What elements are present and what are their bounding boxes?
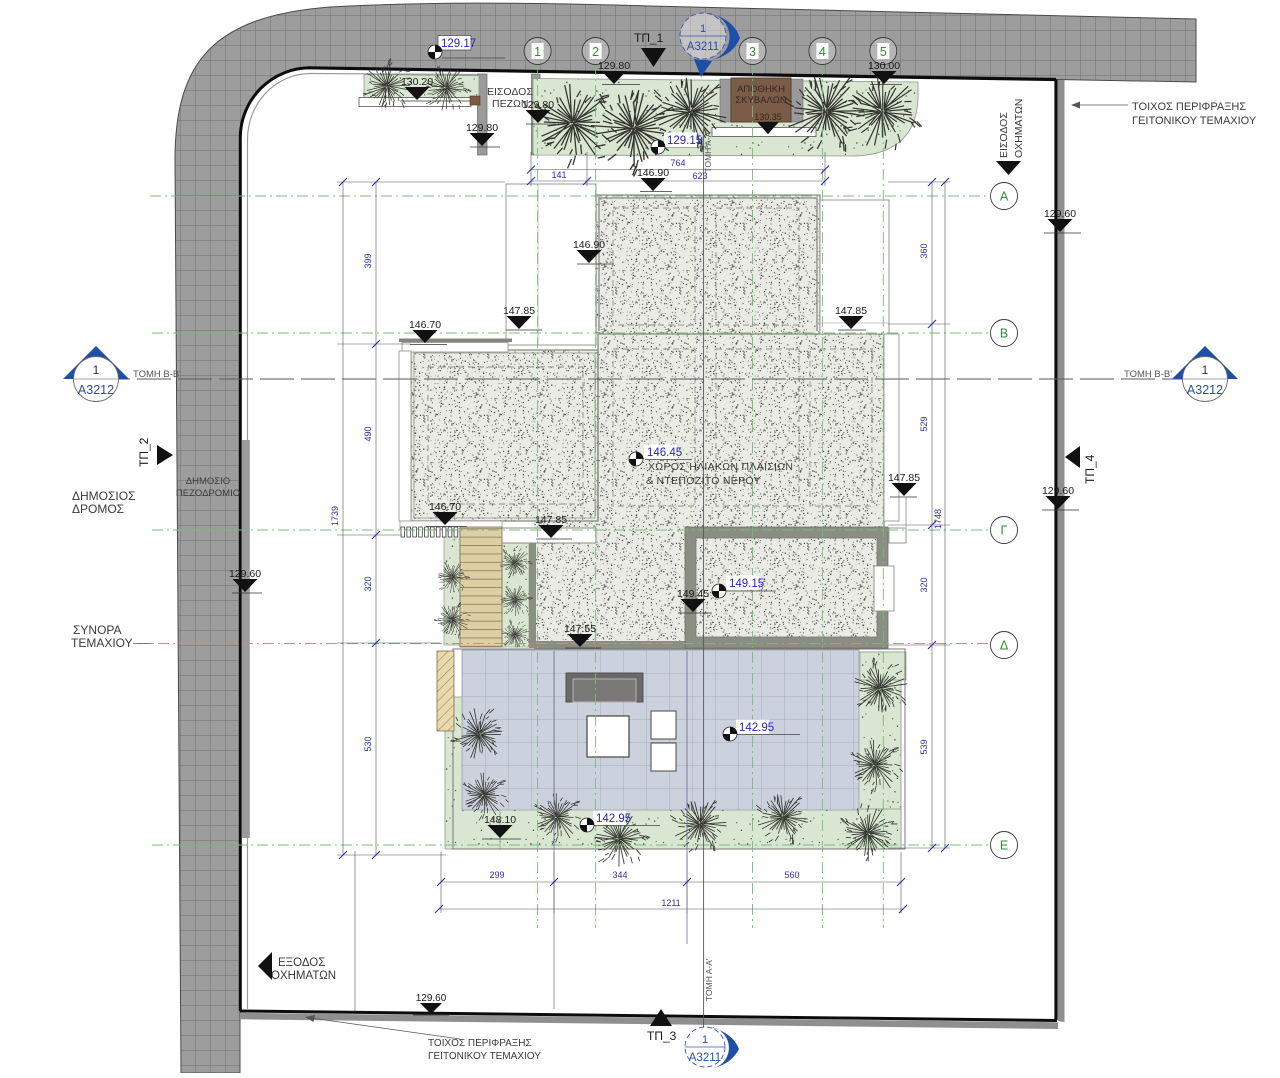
svg-text:ΔΡΟΜΟΣ: ΔΡΟΜΟΣ: [72, 502, 124, 516]
svg-text:146.70: 146.70: [429, 501, 461, 513]
svg-text:147.85: 147.85: [888, 472, 920, 484]
svg-text:ΓΕΙΤΟΝΙΚΟΥ ΤΕΜΑΧΙΟΥ: ΓΕΙΤΟΝΙΚΟΥ ΤΕΜΑΧΙΟΥ: [428, 1051, 541, 1062]
svg-text:ΠΕΖΟΔΡΟΜΙΟ: ΠΕΖΟΔΡΟΜΙΟ: [176, 488, 240, 499]
svg-text:A3212: A3212: [1187, 383, 1223, 397]
svg-text:& ΝΤΕΠΟΖΙΤΟ ΝΕΡΟΥ: & ΝΤΕΠΟΖΙΤΟ ΝΕΡΟΥ: [646, 475, 761, 487]
svg-text:399: 399: [363, 253, 373, 268]
svg-text:ΤΟΜΗ Α-Α': ΤΟΜΗ Α-Α': [703, 130, 713, 173]
svg-text:129.80: 129.80: [466, 122, 498, 134]
svg-text:1: 1: [702, 1034, 708, 1046]
svg-text:764: 764: [670, 158, 685, 168]
svg-text:ΤΟΜΗ Α-Α': ΤΟΜΗ Α-Α': [704, 958, 714, 1001]
svg-text:129.60: 129.60: [416, 993, 447, 1004]
svg-text:Ε: Ε: [1000, 839, 1008, 853]
svg-text:A3211: A3211: [687, 41, 719, 53]
svg-text:529: 529: [919, 416, 929, 431]
svg-text:129.60: 129.60: [1044, 208, 1076, 220]
svg-text:ΤΟΙΧΟΣ ΠΕΡΙΦΡΑΞΗΣ: ΤΟΙΧΟΣ ΠΕΡΙΦΡΑΞΗΣ: [428, 1038, 532, 1049]
svg-text:4: 4: [819, 45, 826, 59]
svg-text:149.15: 149.15: [729, 578, 764, 590]
svg-text:Β: Β: [1000, 327, 1008, 341]
svg-text:539: 539: [919, 739, 929, 754]
svg-text:560: 560: [784, 870, 799, 880]
svg-text:130.35: 130.35: [754, 112, 782, 122]
svg-text:129.80: 129.80: [598, 60, 630, 72]
svg-text:ΤΠ_4: ΤΠ_4: [1083, 454, 1097, 484]
svg-text:Γ: Γ: [1001, 524, 1008, 538]
svg-text:ΣΚΥΒΑΛΩΝ: ΣΚΥΒΑΛΩΝ: [735, 95, 787, 106]
svg-text:ΟΧΗΜΑΤΩΝ: ΟΧΗΜΑΤΩΝ: [1013, 99, 1025, 158]
svg-text:146.70: 146.70: [409, 319, 441, 331]
svg-text:149.45: 149.45: [677, 588, 709, 600]
svg-text:147.85: 147.85: [535, 514, 567, 526]
svg-text:130.00: 130.00: [868, 60, 900, 72]
svg-text:320: 320: [363, 576, 373, 591]
svg-text:ΕΙΣΟΔΟΣ: ΕΙΣΟΔΟΣ: [998, 112, 1010, 158]
svg-text:146.90: 146.90: [573, 239, 605, 251]
svg-text:ΟΧΗΜΑΤΩΝ: ΟΧΗΜΑΤΩΝ: [271, 970, 336, 982]
svg-text:129.17: 129.17: [441, 38, 476, 50]
svg-text:ΤΟΜΗ Β-Β': ΤΟΜΗ Β-Β': [133, 369, 181, 380]
svg-text:1748: 1748: [933, 509, 943, 529]
svg-text:5: 5: [880, 45, 887, 59]
svg-text:146.90: 146.90: [637, 167, 669, 179]
svg-text:ΠΕΖΩΝ: ΠΕΖΩΝ: [492, 98, 528, 110]
svg-text:1739: 1739: [330, 506, 340, 526]
svg-text:530: 530: [363, 736, 373, 751]
svg-text:320: 320: [919, 577, 929, 592]
svg-text:1: 1: [534, 45, 541, 59]
svg-text:146.45: 146.45: [647, 447, 682, 459]
svg-text:3: 3: [749, 45, 756, 59]
svg-text:147.85: 147.85: [503, 305, 535, 317]
svg-text:360: 360: [919, 243, 929, 258]
svg-text:ΑΠΟΘΗΚΗ: ΑΠΟΘΗΚΗ: [737, 84, 785, 95]
svg-text:ΔΗΜΟΣΙΟ: ΔΗΜΟΣΙΟ: [186, 476, 230, 487]
svg-text:A3212: A3212: [78, 383, 114, 397]
svg-text:ΓΕΙΤΟΝΙΚΟΥ ΤΕΜΑΧΙΟΥ: ΓΕΙΤΟΝΙΚΟΥ ΤΕΜΑΧΙΟΥ: [1132, 115, 1257, 127]
svg-text:623: 623: [692, 171, 707, 181]
svg-text:ΤΕΜΑΧΙΟΥ: ΤΕΜΑΧΙΟΥ: [71, 636, 133, 650]
svg-text:129.60: 129.60: [229, 568, 261, 580]
svg-text:Δ: Δ: [1000, 639, 1008, 653]
svg-text:130.20: 130.20: [401, 76, 433, 88]
svg-text:ΣΥΝΟΡΑ: ΣΥΝΟΡΑ: [73, 623, 122, 637]
svg-text:ΔΗΜΟΣΙΟΣ: ΔΗΜΟΣΙΟΣ: [72, 489, 136, 503]
svg-text:344: 344: [612, 870, 627, 880]
svg-text:ΤΠ_3: ΤΠ_3: [647, 1029, 677, 1043]
svg-text:ΕΙΣΟΔΟΣ: ΕΙΣΟΔΟΣ: [487, 86, 533, 98]
svg-text:ΤΠ_1: ΤΠ_1: [634, 31, 664, 45]
svg-text:ΧΩΡΟΣ ΗΛΙΑΚΩΝ ΠΛΑΙΣΙΩΝ: ΧΩΡΟΣ ΗΛΙΑΚΩΝ ΠΛΑΙΣΙΩΝ: [648, 461, 793, 473]
svg-text:A3211: A3211: [689, 1052, 721, 1064]
svg-text:490: 490: [363, 426, 373, 441]
svg-text:1: 1: [700, 23, 706, 35]
svg-text:142.95: 142.95: [739, 722, 774, 734]
svg-text:ΤΟΜΗ Β-Β': ΤΟΜΗ Β-Β': [1124, 369, 1172, 380]
svg-text:ΤΟΙΧΟΣ ΠΕΡΙΦΡΑΞΗΣ: ΤΟΙΧΟΣ ΠΕΡΙΦΡΑΞΗΣ: [1132, 101, 1246, 113]
svg-text:1: 1: [1202, 363, 1209, 377]
svg-text:2: 2: [592, 45, 599, 59]
svg-text:147.85: 147.85: [835, 305, 867, 317]
svg-text:ΤΠ_2: ΤΠ_2: [137, 437, 151, 467]
svg-text:1211: 1211: [661, 898, 680, 908]
svg-text:129.15: 129.15: [667, 135, 702, 147]
svg-text:ΕΞΟΔΟΣ: ΕΞΟΔΟΣ: [278, 957, 325, 969]
svg-text:1: 1: [93, 363, 100, 377]
svg-text:142.95: 142.95: [596, 813, 631, 825]
svg-text:147.55: 147.55: [564, 623, 596, 635]
svg-text:299: 299: [489, 870, 504, 880]
svg-text:Α: Α: [1000, 190, 1009, 204]
svg-text:148.10: 148.10: [484, 814, 516, 826]
svg-text:141: 141: [551, 170, 566, 180]
svg-text:129.60: 129.60: [1042, 485, 1074, 497]
